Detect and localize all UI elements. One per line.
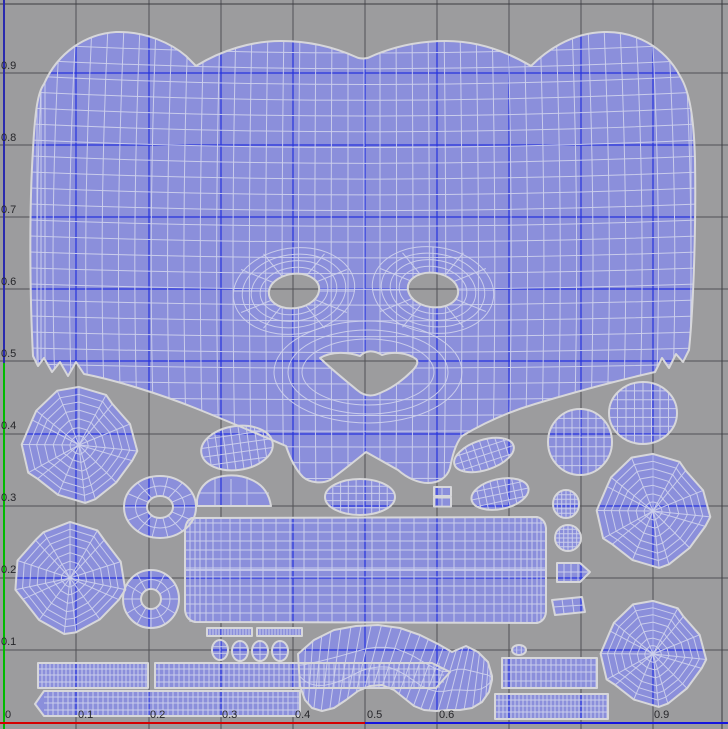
axis-label-u: 0.3 bbox=[222, 709, 237, 721]
axis-label-v: 0.2 bbox=[1, 564, 16, 576]
axis-label-u: 0.4 bbox=[295, 709, 310, 721]
wireframe-edge bbox=[22, 445, 79, 446]
axis-label-v: 0.8 bbox=[1, 132, 16, 144]
axis-label-u: 0.9 bbox=[654, 709, 669, 721]
axis-label-v: 0.7 bbox=[1, 204, 16, 216]
axis-label-v: 0.3 bbox=[1, 492, 16, 504]
uv-island bbox=[257, 628, 302, 636]
axis-label-u: 0.6 bbox=[439, 709, 454, 721]
axis-label-v: 0.6 bbox=[1, 276, 16, 288]
axis-label-u: 0.5 bbox=[367, 709, 382, 721]
uv-editor-viewport[interactable]: 0.9 0.8 0.7 0.6 0.5 0.4 0.3 0.2 0.1 0 0.… bbox=[0, 0, 728, 729]
axis-label-v: 0.5 bbox=[1, 348, 16, 360]
axis-label-v: 0.1 bbox=[1, 636, 16, 648]
uv-canvas[interactable] bbox=[0, 0, 728, 729]
axis-label-v: 0.9 bbox=[1, 60, 16, 72]
axis-label-u: 0.2 bbox=[150, 709, 165, 721]
axis-label-u: 0.1 bbox=[78, 709, 93, 721]
wireframe-edge bbox=[597, 511, 653, 512]
axis-label-u: 0 bbox=[5, 709, 11, 721]
axis-label-v: 0.4 bbox=[1, 420, 16, 432]
uv-island bbox=[207, 628, 252, 636]
